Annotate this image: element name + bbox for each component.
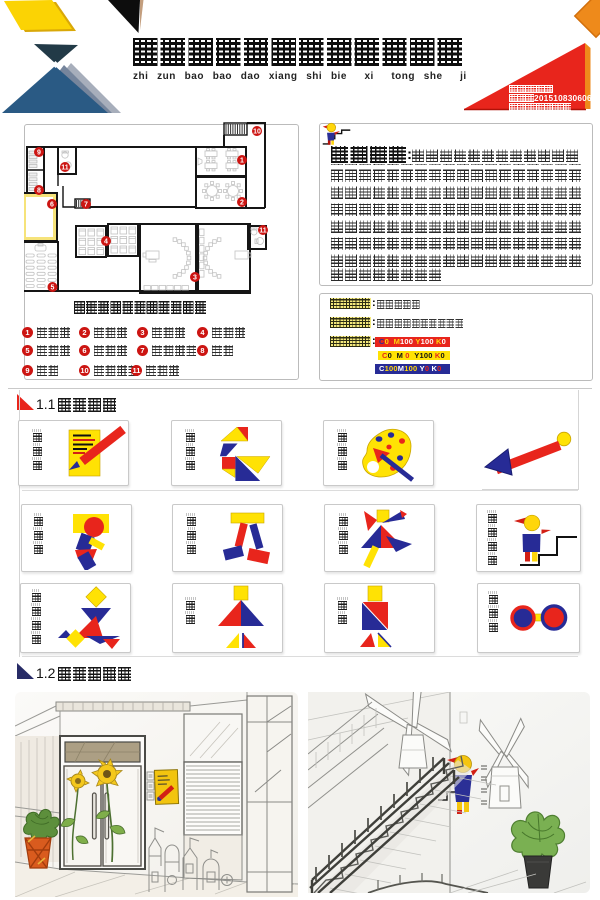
- svg-text:2: 2: [240, 200, 244, 207]
- svg-text:11: 11: [259, 228, 267, 235]
- svg-text:7: 7: [84, 202, 88, 209]
- svg-text:11: 11: [61, 165, 69, 172]
- svg-text:4: 4: [104, 239, 108, 246]
- svg-text:6: 6: [50, 202, 54, 209]
- svg-text:9: 9: [37, 150, 41, 157]
- svg-text:8: 8: [37, 188, 41, 195]
- svg-text:5: 5: [51, 285, 55, 292]
- svg-text:10: 10: [253, 129, 261, 136]
- svg-text:1: 1: [240, 158, 244, 165]
- svg-text:3: 3: [193, 275, 197, 282]
